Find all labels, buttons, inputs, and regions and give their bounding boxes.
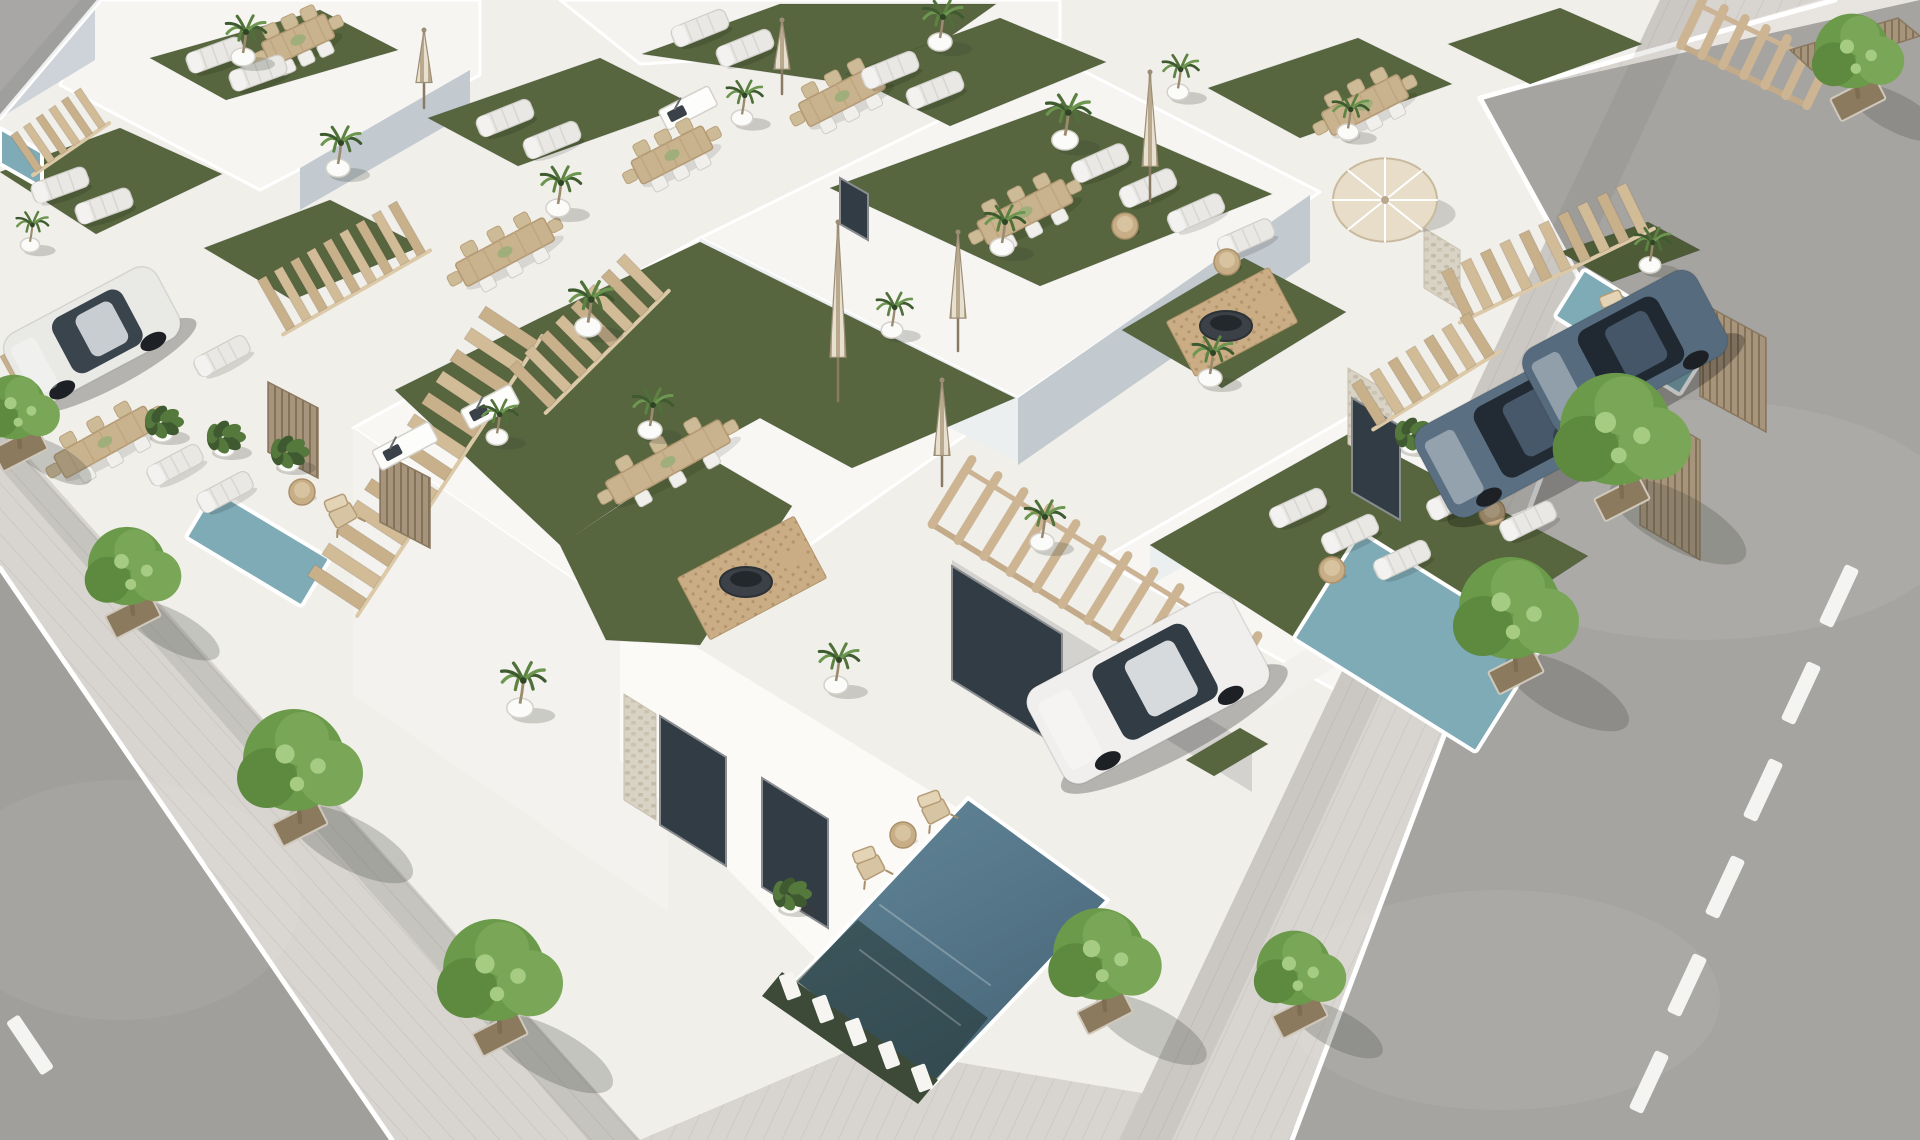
- tree-highlight: [310, 758, 326, 774]
- tree-highlight: [1491, 592, 1510, 611]
- palm-crown: [1178, 67, 1183, 72]
- parasol-tip: [1148, 70, 1153, 75]
- palm-crown: [520, 677, 527, 684]
- firepit-bowl-inner: [1210, 315, 1242, 331]
- side-table-inner: [1324, 560, 1340, 576]
- palm-crown: [650, 402, 656, 408]
- tree-highlight: [490, 987, 504, 1001]
- tree-highlight: [1633, 427, 1650, 444]
- palm-crown: [1348, 107, 1353, 112]
- palm-crown: [1210, 350, 1216, 356]
- tree-highlight: [14, 418, 23, 427]
- palm-crown: [497, 412, 502, 417]
- tree-highlight: [141, 565, 153, 577]
- palm-crown: [836, 657, 842, 663]
- firepit-bowl-inner: [730, 571, 762, 587]
- side-table-inner: [895, 825, 911, 841]
- palm-crown: [742, 93, 747, 98]
- tree-highlight: [290, 777, 304, 791]
- palm-crown: [558, 180, 564, 186]
- palm-crown: [1650, 240, 1655, 245]
- tree-highlight: [1851, 63, 1862, 74]
- tree-highlight: [1293, 980, 1304, 991]
- tree-highlight: [125, 579, 136, 590]
- side-table-inner: [294, 482, 310, 498]
- parasol-tip: [422, 28, 427, 33]
- palm-crown: [1065, 109, 1072, 116]
- parasol-tip: [836, 220, 841, 225]
- tree-highlight: [1114, 952, 1128, 966]
- side-table-inner: [1117, 216, 1133, 232]
- tree-highlight: [1840, 40, 1854, 54]
- tree-highlight: [1083, 940, 1100, 957]
- palm-crown: [30, 223, 35, 228]
- tree-highlight: [1506, 625, 1520, 639]
- tree-highlight: [4, 397, 16, 409]
- tree-highlight: [1307, 967, 1318, 978]
- stone-cladding: [624, 694, 656, 820]
- parasol-tip: [780, 18, 785, 23]
- tree-highlight: [1526, 606, 1542, 622]
- palm-crown: [338, 140, 344, 146]
- tree-highlight: [1611, 447, 1627, 463]
- render-canvas: [0, 0, 1920, 1140]
- palm-crown: [588, 296, 595, 303]
- parasol-tip: [956, 230, 961, 235]
- palm-crown: [243, 29, 249, 35]
- tree-highlight: [275, 744, 294, 763]
- tree-highlight: [1096, 969, 1109, 982]
- tree-highlight: [1865, 50, 1876, 61]
- parasol-hub: [1381, 196, 1389, 204]
- tree-highlight: [114, 554, 129, 569]
- palm-crown: [1002, 219, 1008, 225]
- palm-crown: [1042, 514, 1048, 520]
- palm-crown: [892, 305, 897, 310]
- palm-crown: [940, 14, 946, 20]
- tree-highlight: [475, 954, 494, 973]
- tree-highlight: [26, 406, 36, 416]
- aerial-render-view: [0, 0, 1920, 1140]
- tree-highlight: [1595, 412, 1616, 433]
- tree-highlight: [1282, 957, 1296, 971]
- tree-highlight: [510, 968, 526, 984]
- parasol-tip: [940, 378, 945, 383]
- side-table-inner: [1219, 252, 1235, 268]
